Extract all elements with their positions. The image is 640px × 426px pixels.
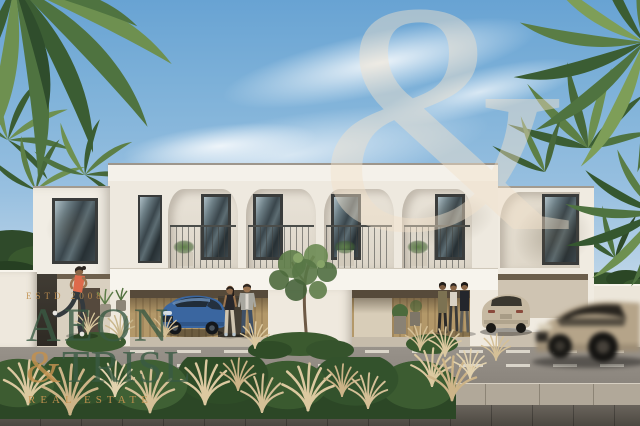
hedge bbox=[0, 357, 456, 419]
boundary-wall-right bbox=[594, 284, 640, 348]
balcony-bay bbox=[402, 189, 472, 268]
narrow-window bbox=[138, 195, 162, 263]
boundary-wall-left bbox=[0, 270, 37, 348]
right-wing-window bbox=[542, 194, 579, 265]
left-wing-window bbox=[52, 198, 98, 264]
upper-floor bbox=[108, 181, 498, 268]
roof-fascia bbox=[108, 163, 498, 183]
lane-marking bbox=[130, 350, 640, 353]
pier bbox=[470, 290, 498, 346]
carport-opening bbox=[498, 274, 588, 318]
main-facade bbox=[108, 163, 498, 346]
carport-right bbox=[352, 290, 470, 346]
balcony-railing bbox=[248, 225, 314, 268]
balcony-bay bbox=[324, 189, 394, 268]
entry-door bbox=[78, 288, 100, 338]
balcony-railing bbox=[404, 225, 470, 268]
architectural-render-scene: & ESTD 2008 AEON &TRISL REAL ESTATE bbox=[0, 0, 640, 426]
balcony-railing bbox=[326, 225, 392, 268]
floor-slab-band bbox=[108, 268, 498, 291]
right-wing bbox=[498, 186, 594, 348]
balcony-bay bbox=[246, 189, 316, 268]
pier bbox=[108, 290, 130, 346]
balcony-bay bbox=[168, 189, 238, 268]
gate-opening bbox=[37, 274, 57, 346]
ground-floor bbox=[108, 290, 498, 346]
balcony-railing bbox=[170, 225, 236, 268]
window-recess bbox=[500, 192, 580, 268]
center-pier bbox=[268, 290, 352, 346]
carport-left bbox=[130, 290, 268, 346]
